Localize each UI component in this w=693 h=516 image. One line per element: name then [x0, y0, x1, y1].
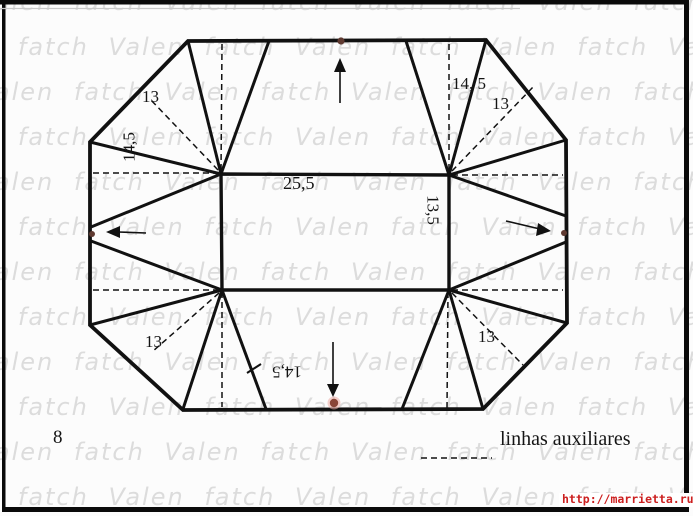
dim-label-14-5-left: 14,5	[121, 132, 138, 162]
dim-label-13-5-height: 13,5	[425, 195, 442, 225]
dim-label-13-top-right: 13	[492, 95, 509, 112]
fold-dot-right	[561, 230, 567, 236]
arrow-right-icon	[506, 221, 551, 236]
dim-label-25-5-width: 25,5	[283, 174, 315, 192]
fold-dot-bottom	[330, 399, 338, 407]
arrow-up-icon	[334, 58, 346, 103]
fold-dot-top	[337, 37, 344, 44]
arrow-down-icon	[327, 342, 339, 397]
arrow-left-icon	[106, 226, 146, 238]
pattern-scan-page: Valen fatch Valen fatch Valen fatch Vale…	[0, 0, 693, 516]
dim-label-14-5-top-right: 14, 5	[452, 75, 486, 92]
legend-label: linhas auxiliares	[500, 429, 631, 449]
source-url: http://marrietta.ru/	[559, 493, 693, 507]
center-rectangle	[221, 174, 449, 290]
step-number: 8	[53, 428, 63, 447]
dim-label-13-bottom-left: 13	[145, 333, 162, 350]
dim-label-14-5-bottom: 14,5	[272, 364, 302, 381]
dim-label-13-top-left: 13	[142, 88, 159, 105]
fold-dot-left	[89, 231, 95, 237]
dim-label-13-bottom-right: 13	[478, 328, 495, 345]
